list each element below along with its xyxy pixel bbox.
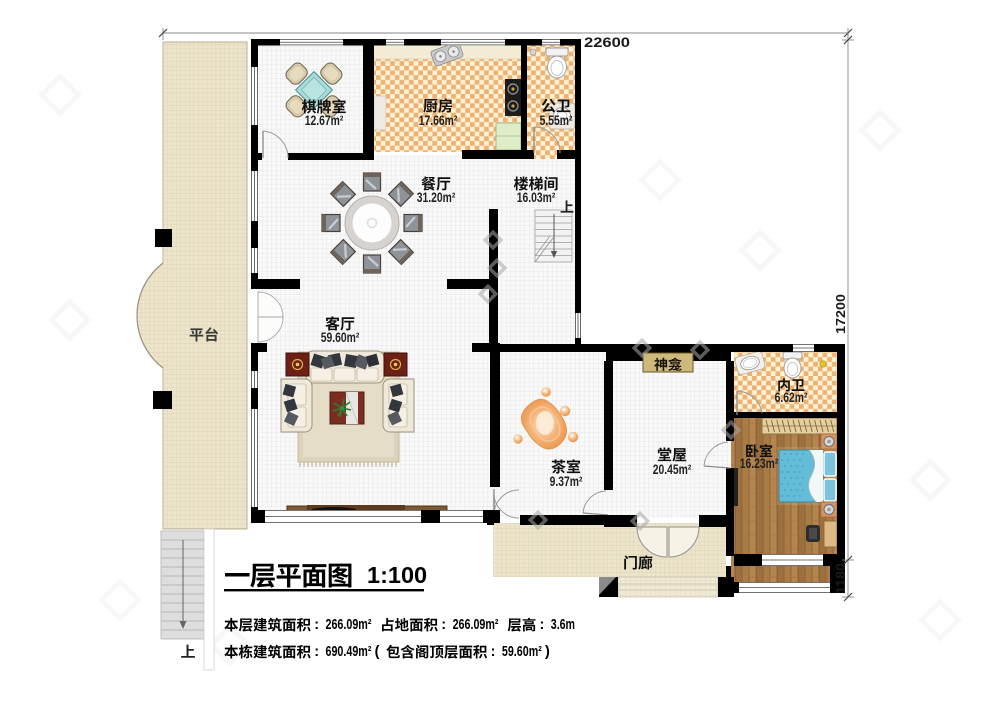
- svg-text:17200: 17200: [834, 294, 848, 334]
- svg-text:17.66m²: 17.66m²: [419, 113, 458, 128]
- svg-text:266.09m²: 266.09m²: [453, 617, 499, 633]
- svg-text:(: (: [375, 644, 380, 660]
- svg-text:20.45m²: 20.45m²: [653, 462, 692, 477]
- svg-text:22600: 22600: [584, 35, 630, 50]
- svg-text::: :: [540, 617, 545, 633]
- svg-text:1:100: 1:100: [367, 562, 427, 588]
- svg-text:690.49m²: 690.49m²: [326, 644, 372, 660]
- svg-text::: :: [441, 617, 446, 633]
- svg-text:12.67m²: 12.67m²: [305, 113, 344, 128]
- svg-text::: :: [314, 617, 319, 633]
- svg-text:16.03m²: 16.03m²: [517, 190, 556, 205]
- svg-text:3.6m: 3.6m: [551, 617, 575, 633]
- svg-text:): ): [545, 644, 550, 660]
- svg-text:9.37m²: 9.37m²: [550, 474, 583, 489]
- svg-text:5.55m²: 5.55m²: [540, 113, 573, 128]
- svg-text:31.20m²: 31.20m²: [417, 190, 456, 205]
- svg-text:16.23m²: 16.23m²: [740, 456, 779, 471]
- svg-text::: :: [491, 644, 496, 660]
- svg-text:6.62m²: 6.62m²: [775, 390, 808, 405]
- svg-text::: :: [314, 644, 319, 660]
- svg-text:1180: 1180: [834, 563, 848, 594]
- svg-text:266.09m²: 266.09m²: [326, 617, 372, 633]
- svg-text:59.60m²: 59.60m²: [502, 644, 542, 660]
- svg-text:59.60m²: 59.60m²: [321, 330, 360, 345]
